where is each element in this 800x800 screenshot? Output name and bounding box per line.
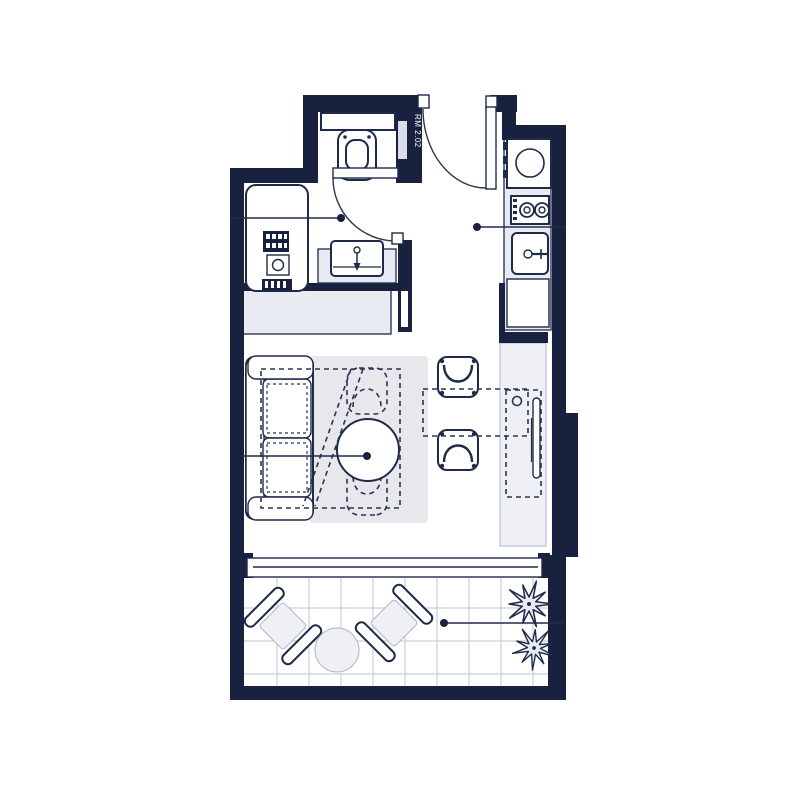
door-stop [392,233,403,244]
cooktop [511,196,549,224]
wall-right-pier [552,413,578,557]
floor-plan-drawing: RM 2.02 [0,0,800,800]
vanity-sink [318,241,396,283]
base-cabinet [507,279,549,327]
wall-niche [401,291,408,327]
shower-stall [246,185,308,291]
wall-corridor-stub [499,283,505,332]
kitchen-sink [512,233,548,274]
round-table [337,419,399,481]
faucet-icon [354,247,360,253]
duct-shaft [398,121,407,159]
wall-bottom [230,686,566,700]
sofa-cushion [263,438,311,497]
wall-left [230,183,244,700]
room-number-label: RM 2.02 [413,114,422,148]
entry-door-swing-arc [423,109,486,188]
outdoor-round-table [315,628,359,672]
door-jamb-left [418,95,429,108]
floor-plan-page: RM 2.02 [0,0,800,800]
sliding-window [247,558,542,577]
tv-panel [533,398,540,478]
sofa-cushion [263,379,311,438]
entry-door [418,95,497,189]
wardrobe-closet [243,288,391,334]
wall-balcony-right [548,555,566,700]
entry-door-leaf [486,107,496,189]
wall-toilet-west [303,95,318,183]
door-swing-arc [333,178,396,241]
wall-kitchen-divider [499,332,548,343]
sofa [246,356,313,520]
wall-west-stub [230,168,304,183]
sofa-armrest [248,356,313,379]
dining-chair-top [438,357,478,397]
door-jamb-right [486,96,497,108]
washer-appliance [503,139,551,188]
door-leaf [333,168,398,178]
wall-entry-step [502,95,516,140]
bathroom [246,113,403,291]
